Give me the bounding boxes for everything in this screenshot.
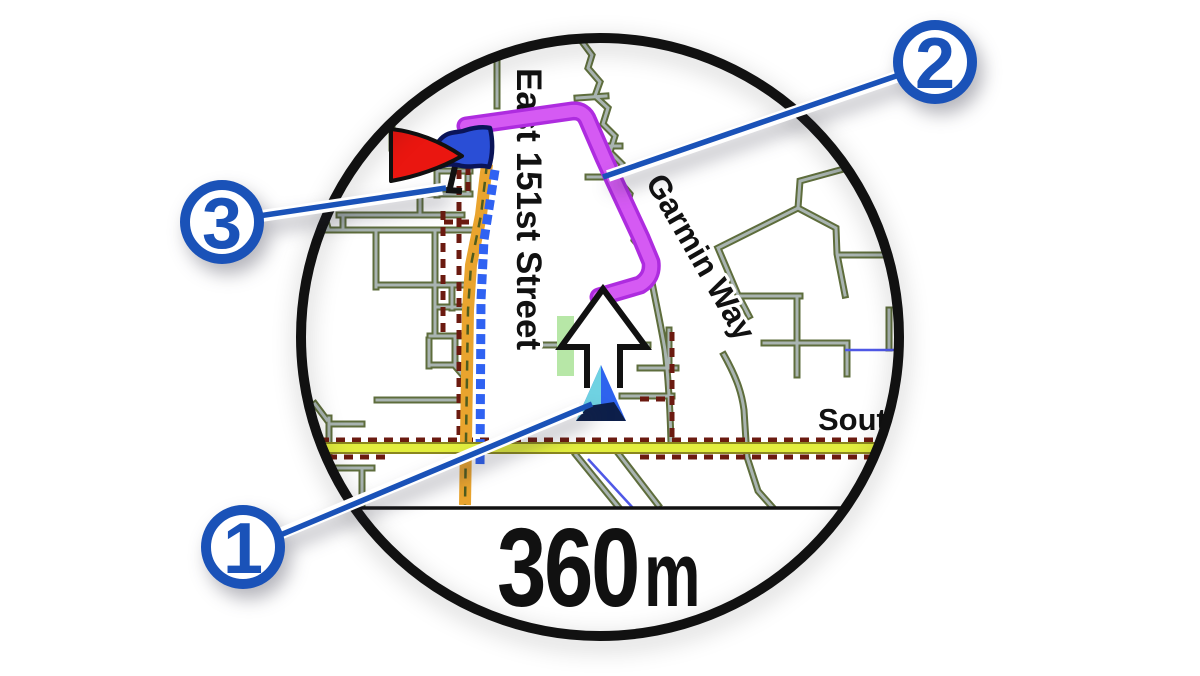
svg-text:360: 360 — [497, 507, 638, 631]
svg-text:3: 3 — [202, 184, 242, 264]
svg-text:m: m — [644, 522, 700, 626]
svg-text:2: 2 — [915, 24, 955, 104]
svg-text:1: 1 — [223, 509, 263, 589]
